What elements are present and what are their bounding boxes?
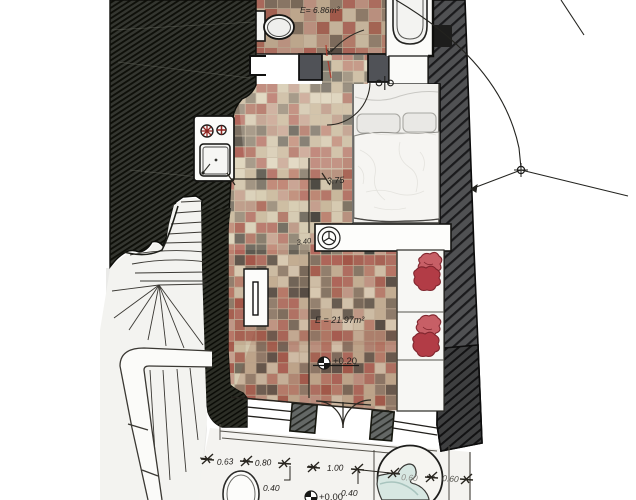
svg-text:E = 21.97m²: E = 21.97m² bbox=[315, 315, 365, 325]
svg-text:0.80: 0.80 bbox=[255, 457, 272, 468]
svg-text:3.75: 3.75 bbox=[326, 175, 345, 186]
svg-text:E= 6.86m²: E= 6.86m² bbox=[300, 5, 341, 15]
svg-text:0.40: 0.40 bbox=[341, 488, 358, 498]
svg-text:0.63: 0.63 bbox=[217, 456, 234, 467]
svg-text:+0.00: +0.00 bbox=[319, 492, 343, 500]
svg-text:0.60: 0.60 bbox=[442, 473, 459, 484]
svg-text:0.40: 0.40 bbox=[263, 483, 280, 493]
svg-text:1.00: 1.00 bbox=[327, 462, 344, 473]
svg-text:+0.20: +0.20 bbox=[333, 356, 357, 367]
svg-text:0.60: 0.60 bbox=[401, 472, 418, 483]
